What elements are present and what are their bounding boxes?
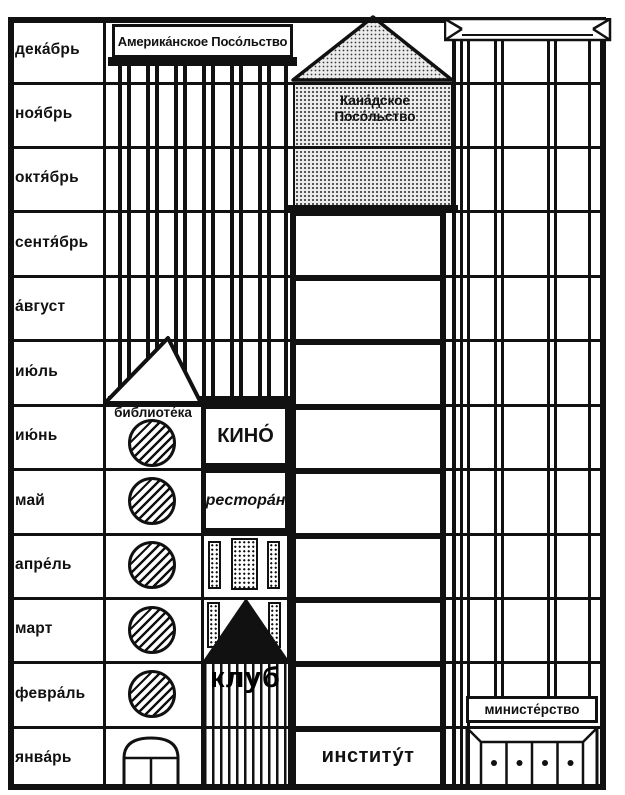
library-window xyxy=(128,670,176,718)
institute-floor-line xyxy=(296,726,440,732)
month-label-march: март xyxy=(15,597,101,661)
library-window xyxy=(128,541,176,589)
month-label-november: ноя́брь xyxy=(15,82,101,146)
club-label: клуб xyxy=(201,662,290,695)
institute-floor-line xyxy=(296,404,440,410)
institute-floor-line xyxy=(296,533,440,539)
institute-floor-line xyxy=(296,468,440,474)
club-pillar xyxy=(231,538,258,590)
canadian-embassy-label: Кана́дское Посо́льство xyxy=(300,93,450,125)
month-label-january: янва́рь xyxy=(15,726,101,790)
embassy-column xyxy=(239,66,243,398)
institute-floor-line xyxy=(296,597,440,603)
ministry-label: министе́рство xyxy=(484,702,579,717)
institute-floor-line xyxy=(296,661,440,667)
month-label-june: ию́нь xyxy=(15,404,101,468)
ministry-sign: министе́рство xyxy=(466,696,598,723)
american-embassy-entablature xyxy=(108,57,297,66)
month-label-february: февра́ль xyxy=(15,661,101,726)
library-roof xyxy=(101,334,205,406)
american-embassy-label: Америка́нское Посо́льство xyxy=(118,34,287,49)
month-label-april: апре́ль xyxy=(15,533,101,597)
restaurant-box: рестора́н xyxy=(201,468,290,533)
illustration-canvas: дека́брь ноя́брь октя́брь сентя́брь а́вг… xyxy=(0,0,625,795)
month-label-october: октя́брь xyxy=(15,146,101,210)
ministry-door xyxy=(464,726,600,790)
institute-floor-line xyxy=(296,339,440,345)
canadian-embassy-label-line2: Посо́льство xyxy=(335,109,416,124)
door-handle-dot xyxy=(568,760,574,766)
door-handle-dot xyxy=(542,760,548,766)
door-handle-dot xyxy=(491,760,497,766)
month-label-september: сентя́брь xyxy=(15,210,101,275)
restaurant-label: рестора́н xyxy=(206,492,286,510)
month-label-july: ию́ль xyxy=(15,339,101,404)
library-window xyxy=(128,606,176,654)
institute-building xyxy=(290,210,446,790)
library-window xyxy=(128,419,176,467)
institute-label: институ́т xyxy=(290,745,446,768)
club-pillar xyxy=(267,541,280,589)
canadian-embassy-label-line1: Кана́дское xyxy=(340,93,410,108)
embassy-column xyxy=(258,66,262,398)
embassy-column xyxy=(230,66,234,398)
month-label-may: май xyxy=(15,468,101,533)
embassy-column xyxy=(267,66,271,398)
ministry-cornice xyxy=(444,18,612,42)
american-embassy-sign: Америка́нское Посо́льство xyxy=(112,24,293,58)
ministry-column xyxy=(460,40,463,790)
embassy-column xyxy=(284,66,288,398)
ministry-left-wall xyxy=(452,40,456,790)
door-handle-dot xyxy=(517,760,523,766)
library-window xyxy=(128,477,176,525)
library-door xyxy=(120,734,182,790)
ministry-column xyxy=(467,40,470,790)
library-sign: библиоте́ка xyxy=(104,405,202,420)
cinema-box: КИНО́ xyxy=(201,404,290,468)
club-pillar xyxy=(208,541,221,589)
month-label-august: а́вгуст xyxy=(15,275,101,339)
month-label-december: дека́брь xyxy=(15,18,101,82)
cinema-label: КИНО́ xyxy=(217,425,274,448)
institute-floor-line xyxy=(296,275,440,281)
embassy-column xyxy=(211,66,215,398)
canadian-embassy-roof xyxy=(286,13,458,84)
